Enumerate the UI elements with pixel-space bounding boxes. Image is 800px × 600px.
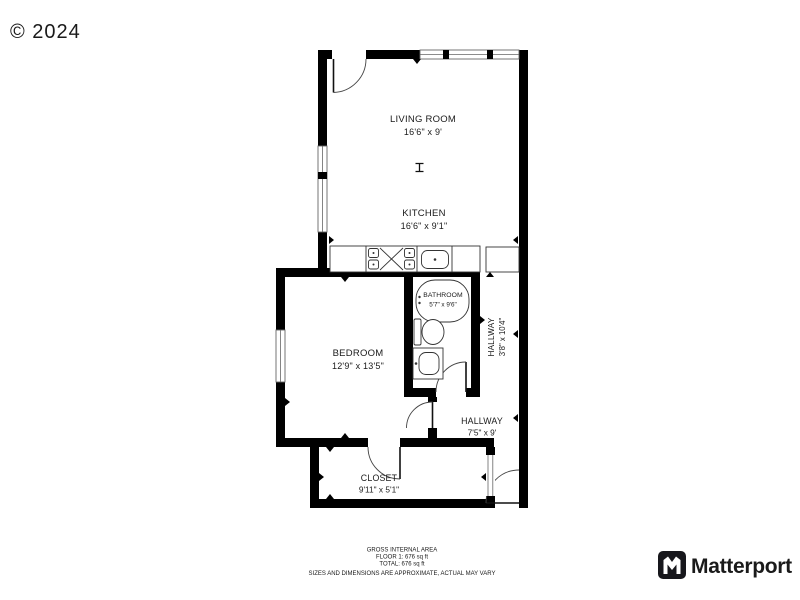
gross-internal-area-title: GROSS INTERNAL AREA <box>367 548 437 554</box>
window-kitchen-left <box>318 146 327 232</box>
area-summary: GROSS INTERNAL AREA FLOOR 1: 676 sq ft T… <box>309 548 496 578</box>
living-room-dimensions: 16'6" x 9' <box>404 127 442 137</box>
copyright-watermark: © 2024 <box>10 21 81 43</box>
light-fixture-icon <box>416 164 424 172</box>
bathroom-dimensions: 5'7" x 9'6" <box>429 302 457 309</box>
matterport-logo-text: Matterport <box>691 555 792 578</box>
hallway-upper-dimensions: 3'8" x 10'4" <box>498 318 507 357</box>
closet-dimensions: 9'11" x 5'1" <box>359 485 399 495</box>
closet-pocket-door <box>486 455 495 496</box>
window-top-wall <box>420 50 519 59</box>
toilet-icon <box>414 319 444 345</box>
hallway-lower-label: HALLWAY <box>461 416 503 426</box>
disclaimer-text: SIZES AND DIMENSIONS ARE APPROXIMATE, AC… <box>309 571 496 577</box>
closet-label: CLOSET <box>361 473 398 483</box>
hallway-upper-label: HALLWAY <box>487 317 496 356</box>
bedroom-dimensions: 12'9" x 13'5" <box>332 361 384 371</box>
living-room-label: LIVING ROOM <box>390 114 456 125</box>
matterport-logo: Matterport <box>658 551 792 579</box>
kitchen-sink-icon <box>422 251 449 269</box>
floor-plan-page: © 2024 <box>0 0 800 600</box>
hallway-lower-dimensions: 7'5" x 9' <box>468 428 497 438</box>
kitchen-label: KITCHEN <box>402 208 445 219</box>
entry-door-top <box>334 59 367 93</box>
bedroom-door <box>407 402 433 428</box>
floor-plan: © 2024 <box>0 0 800 600</box>
bedroom-label: BEDROOM <box>333 348 384 359</box>
fridge-icon <box>486 247 519 272</box>
kitchen-dimensions: 16'6" x 9'1" <box>401 221 448 231</box>
bathroom-label: BATHROOM <box>423 292 463 299</box>
bathroom-sink-icon <box>413 348 443 379</box>
floor-area-text: FLOOR 1: 676 sq ft <box>376 555 428 561</box>
window-bedroom-left <box>276 330 285 382</box>
total-area-text: TOTAL: 676 sq ft <box>379 562 424 568</box>
